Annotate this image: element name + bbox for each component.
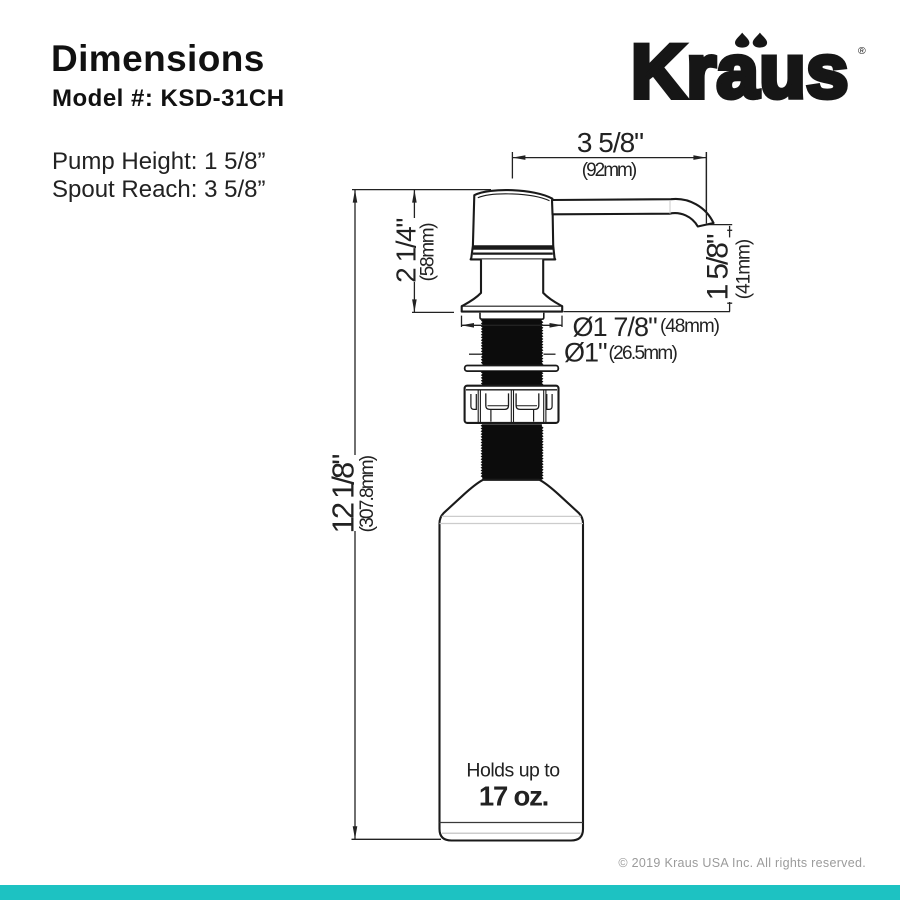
svg-text:(58mm): (58mm) — [418, 223, 439, 282]
svg-text:1 5/8": 1 5/8" — [701, 234, 734, 300]
svg-text:3 5/8": 3 5/8" — [577, 127, 643, 158]
svg-text:Holds up to: Holds up to — [466, 760, 560, 782]
svg-text:(307.8mm): (307.8mm) — [357, 455, 378, 532]
svg-text:12 1/8": 12 1/8" — [326, 455, 361, 534]
svg-text:(92mm): (92mm) — [582, 160, 637, 181]
svg-text:(41mm): (41mm) — [734, 239, 755, 299]
svg-text:(26.5mm): (26.5mm) — [609, 343, 678, 364]
svg-text:Ø1": Ø1" — [564, 338, 607, 368]
svg-text:(48mm): (48mm) — [660, 316, 720, 337]
svg-text:17 oz.: 17 oz. — [479, 781, 548, 812]
